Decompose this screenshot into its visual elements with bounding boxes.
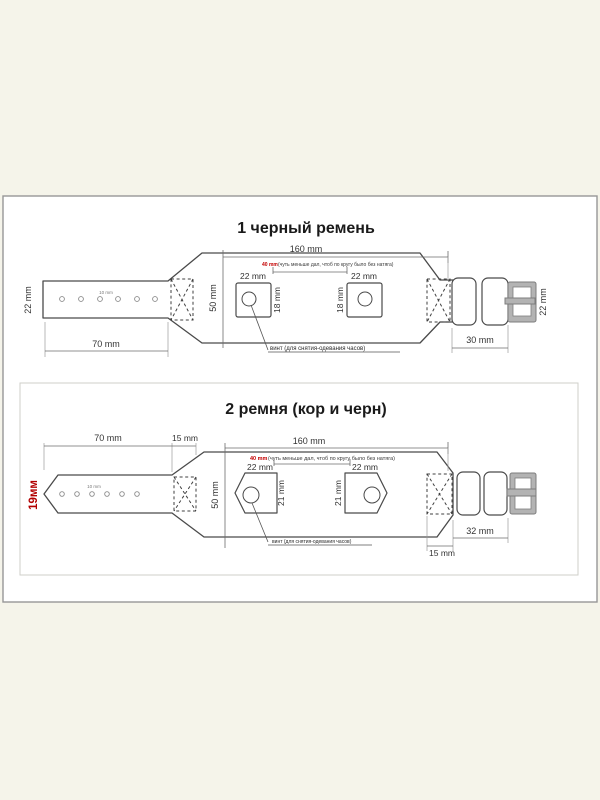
gap-value-label: 40 mm	[262, 262, 278, 268]
diagram2-title: 2 ремня (кор и черн)	[225, 401, 386, 418]
diagram1-title: 1 черный ремень	[237, 220, 375, 237]
buckle-prong	[505, 298, 535, 304]
pad2-width-label: 22 mm	[352, 462, 378, 472]
buckle-width-label: 22 mm	[538, 288, 548, 316]
svg-text:32 mm: 32 mm	[466, 526, 494, 536]
svg-text:винт (для снятия-одевания часо: винт (для снятия-одевания часов)	[270, 346, 365, 352]
strap-keeper-2	[484, 472, 507, 515]
pad1-width-label: 22 mm	[240, 271, 266, 281]
strap-keeper-1	[452, 278, 476, 325]
pad1-height-label: 18 mm	[272, 287, 282, 313]
strap-keeper-2	[482, 278, 508, 325]
strap-keeper-1	[457, 472, 480, 515]
body-height-label: 50 mm	[208, 284, 218, 312]
body-height-label: 50 mm	[210, 481, 220, 509]
svg-text:15 mm: 15 mm	[429, 548, 455, 558]
svg-text:30 mm: 30 mm	[466, 335, 494, 345]
left-width-label: 19мм	[28, 480, 40, 510]
svg-text:160 mm: 160 mm	[293, 436, 326, 446]
buckle	[507, 473, 536, 514]
page-canvas: 1 черный ремень 10 mm 22 mm	[0, 0, 600, 800]
svg-text:160 mm: 160 mm	[290, 244, 323, 254]
svg-text:винт (для снятия-одевания часо: винт (для снятия-одевания часов)	[272, 539, 352, 545]
left-width-label: 22 mm	[23, 286, 33, 314]
svg-text:15 mm: 15 mm	[172, 433, 198, 443]
pad2-height-label: 21 mm	[333, 480, 343, 506]
hole-spacing-label: 10 mm	[99, 290, 113, 295]
watch-pad-right	[347, 283, 382, 317]
buckle-prong	[507, 489, 536, 496]
pad2-width-label: 22 mm	[351, 271, 377, 281]
pad1-height-label: 21 mm	[276, 480, 286, 506]
gap-note-text: (чуть меньше дал, чтоб по кругу было без…	[278, 262, 394, 268]
svg-text:70 mm: 70 mm	[92, 339, 120, 349]
buckle	[505, 282, 536, 322]
pad1-width-label: 22 mm	[247, 462, 273, 472]
svg-text:70 mm: 70 mm	[94, 433, 122, 443]
hole-spacing-label: 10 mm	[87, 484, 101, 489]
pad2-height-label: 18 mm	[335, 287, 345, 313]
